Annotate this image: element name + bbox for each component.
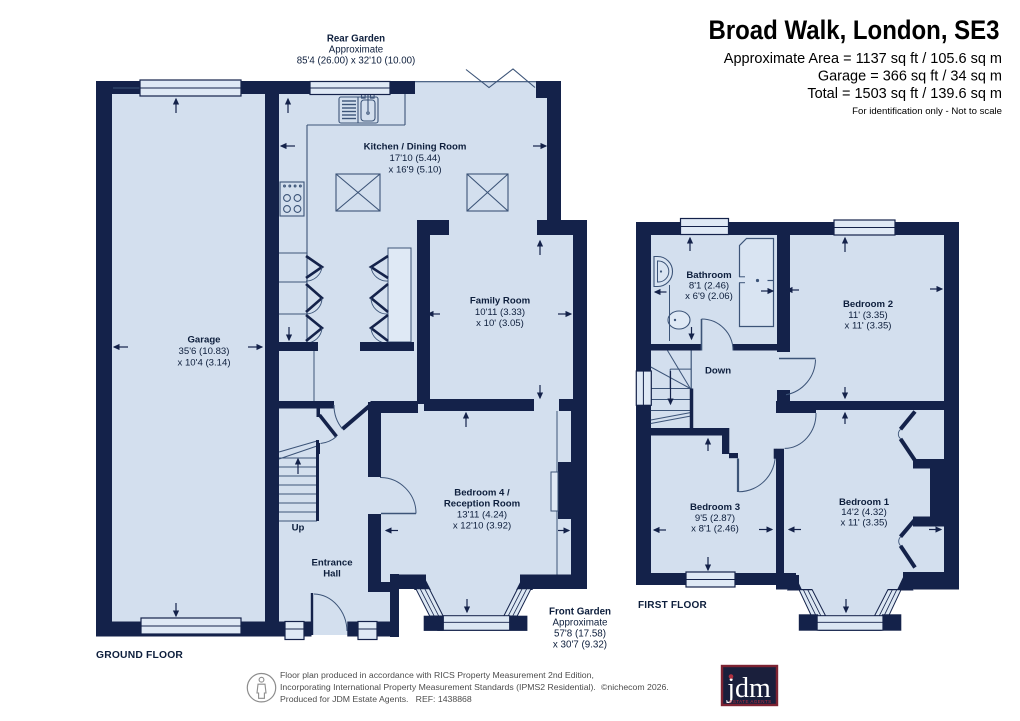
svg-text:Approximate: Approximate bbox=[553, 618, 609, 629]
svg-text:Down: Down bbox=[705, 366, 731, 377]
svg-text:13'11 (4.24): 13'11 (4.24) bbox=[457, 510, 507, 521]
svg-text:Up: Up bbox=[292, 523, 305, 534]
svg-text:Front Garden: Front Garden bbox=[549, 607, 611, 618]
svg-text:ESTATE AGENTS: ESTATE AGENTS bbox=[729, 699, 771, 704]
svg-text:Incorporating International Pr: Incorporating International Property Mea… bbox=[280, 682, 596, 692]
svg-text:x 30'7 (9.32): x 30'7 (9.32) bbox=[553, 640, 607, 651]
svg-text:9'5 (2.87): 9'5 (2.87) bbox=[695, 513, 735, 524]
svg-text:85'4 (26.00) x 32'10 (10.00): 85'4 (26.00) x 32'10 (10.00) bbox=[297, 56, 415, 67]
svg-text:Bathroom: Bathroom bbox=[686, 270, 731, 281]
svg-text:57'8 (17.58): 57'8 (17.58) bbox=[554, 629, 606, 640]
svg-text:Kitchen / Dining Room: Kitchen / Dining Room bbox=[364, 142, 467, 153]
svg-text:Entrance: Entrance bbox=[311, 558, 352, 569]
svg-text:x 12'10 (3.92): x 12'10 (3.92) bbox=[453, 521, 511, 532]
svg-text:Total = 1503 sq ft / 139.6 sq: Total = 1503 sq ft / 139.6 sq m bbox=[807, 86, 1002, 102]
svg-text:10'11 (3.33): 10'11 (3.33) bbox=[475, 307, 525, 318]
svg-text:x 16'9 (5.10): x 16'9 (5.10) bbox=[388, 165, 441, 176]
svg-text:Bedroom 2: Bedroom 2 bbox=[843, 299, 893, 310]
svg-text:Approximate Area = 1137 sq ft: Approximate Area = 1137 sq ft / 105.6 sq… bbox=[724, 51, 1002, 67]
svg-text:x 11' (3.35): x 11' (3.35) bbox=[845, 321, 892, 332]
svg-text:x 8'1 (2.46): x 8'1 (2.46) bbox=[691, 523, 739, 534]
svg-text:Garage: Garage bbox=[187, 335, 220, 346]
svg-text:35'6 (10.83): 35'6 (10.83) bbox=[179, 346, 230, 357]
svg-text:Floor plan produced in accorda: Floor plan produced in accordance with R… bbox=[280, 670, 594, 680]
svg-text:17'10 (5.44): 17'10 (5.44) bbox=[390, 153, 441, 164]
svg-text:Hall: Hall bbox=[323, 569, 341, 580]
svg-text:Garage = 366 sq ft / 34 sq m: Garage = 366 sq ft / 34 sq m bbox=[818, 69, 1002, 85]
svg-text:x 11' (3.35): x 11' (3.35) bbox=[841, 517, 888, 528]
svg-text:11' (3.35): 11' (3.35) bbox=[848, 310, 888, 321]
svg-text:Broad Walk, London, SE3: Broad Walk, London, SE3 bbox=[709, 15, 1000, 45]
svg-text:Produced for JDM Estate Agents: Produced for JDM Estate Agents. REF: 143… bbox=[280, 694, 472, 704]
svg-text:FIRST FLOOR: FIRST FLOOR bbox=[638, 600, 707, 611]
svg-text:8'1 (2.46): 8'1 (2.46) bbox=[689, 281, 729, 292]
svg-text:GROUND FLOOR: GROUND FLOOR bbox=[96, 650, 183, 661]
svg-text:x 10' (3.05): x 10' (3.05) bbox=[476, 318, 524, 329]
svg-text:Rear Garden: Rear Garden bbox=[327, 34, 385, 45]
svg-text:x 10'4 (3.14): x 10'4 (3.14) bbox=[177, 358, 230, 369]
svg-text:Family Room: Family Room bbox=[470, 296, 530, 307]
svg-text:Bedroom 4 /: Bedroom 4 / bbox=[454, 488, 510, 499]
svg-text:Bedroom 3: Bedroom 3 bbox=[690, 502, 740, 513]
svg-text:©nichecom 2026.: ©nichecom 2026. bbox=[601, 682, 669, 692]
svg-text:Approximate: Approximate bbox=[329, 45, 383, 56]
svg-text:Reception Room: Reception Room bbox=[444, 499, 520, 510]
svg-text:For identification only - Not: For identification only - Not to scale bbox=[852, 106, 1002, 117]
svg-text:x 6'9 (2.06): x 6'9 (2.06) bbox=[685, 291, 733, 302]
